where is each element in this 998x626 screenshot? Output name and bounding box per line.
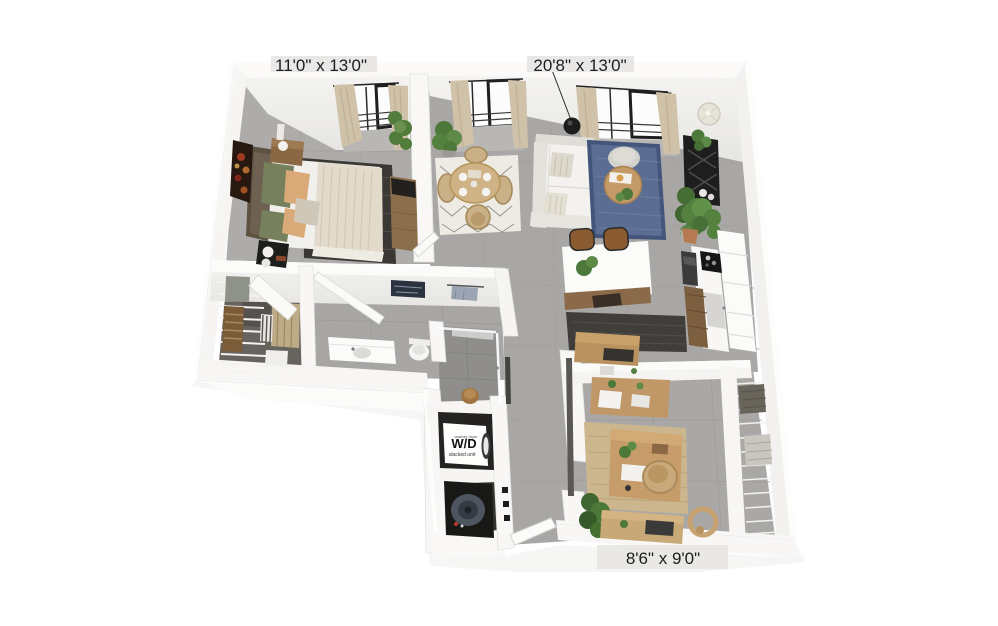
svg-text:stacked unit: stacked unit (449, 452, 476, 458)
svg-text:8'6" x 9'0": 8'6" x 9'0" (626, 549, 700, 568)
svg-text:11'0" x 13'0": 11'0" x 13'0" (275, 56, 367, 75)
svg-text:20'8" x 13'0": 20'8" x 13'0" (533, 56, 626, 75)
svg-text:washer dryer: washer dryer (454, 434, 478, 439)
